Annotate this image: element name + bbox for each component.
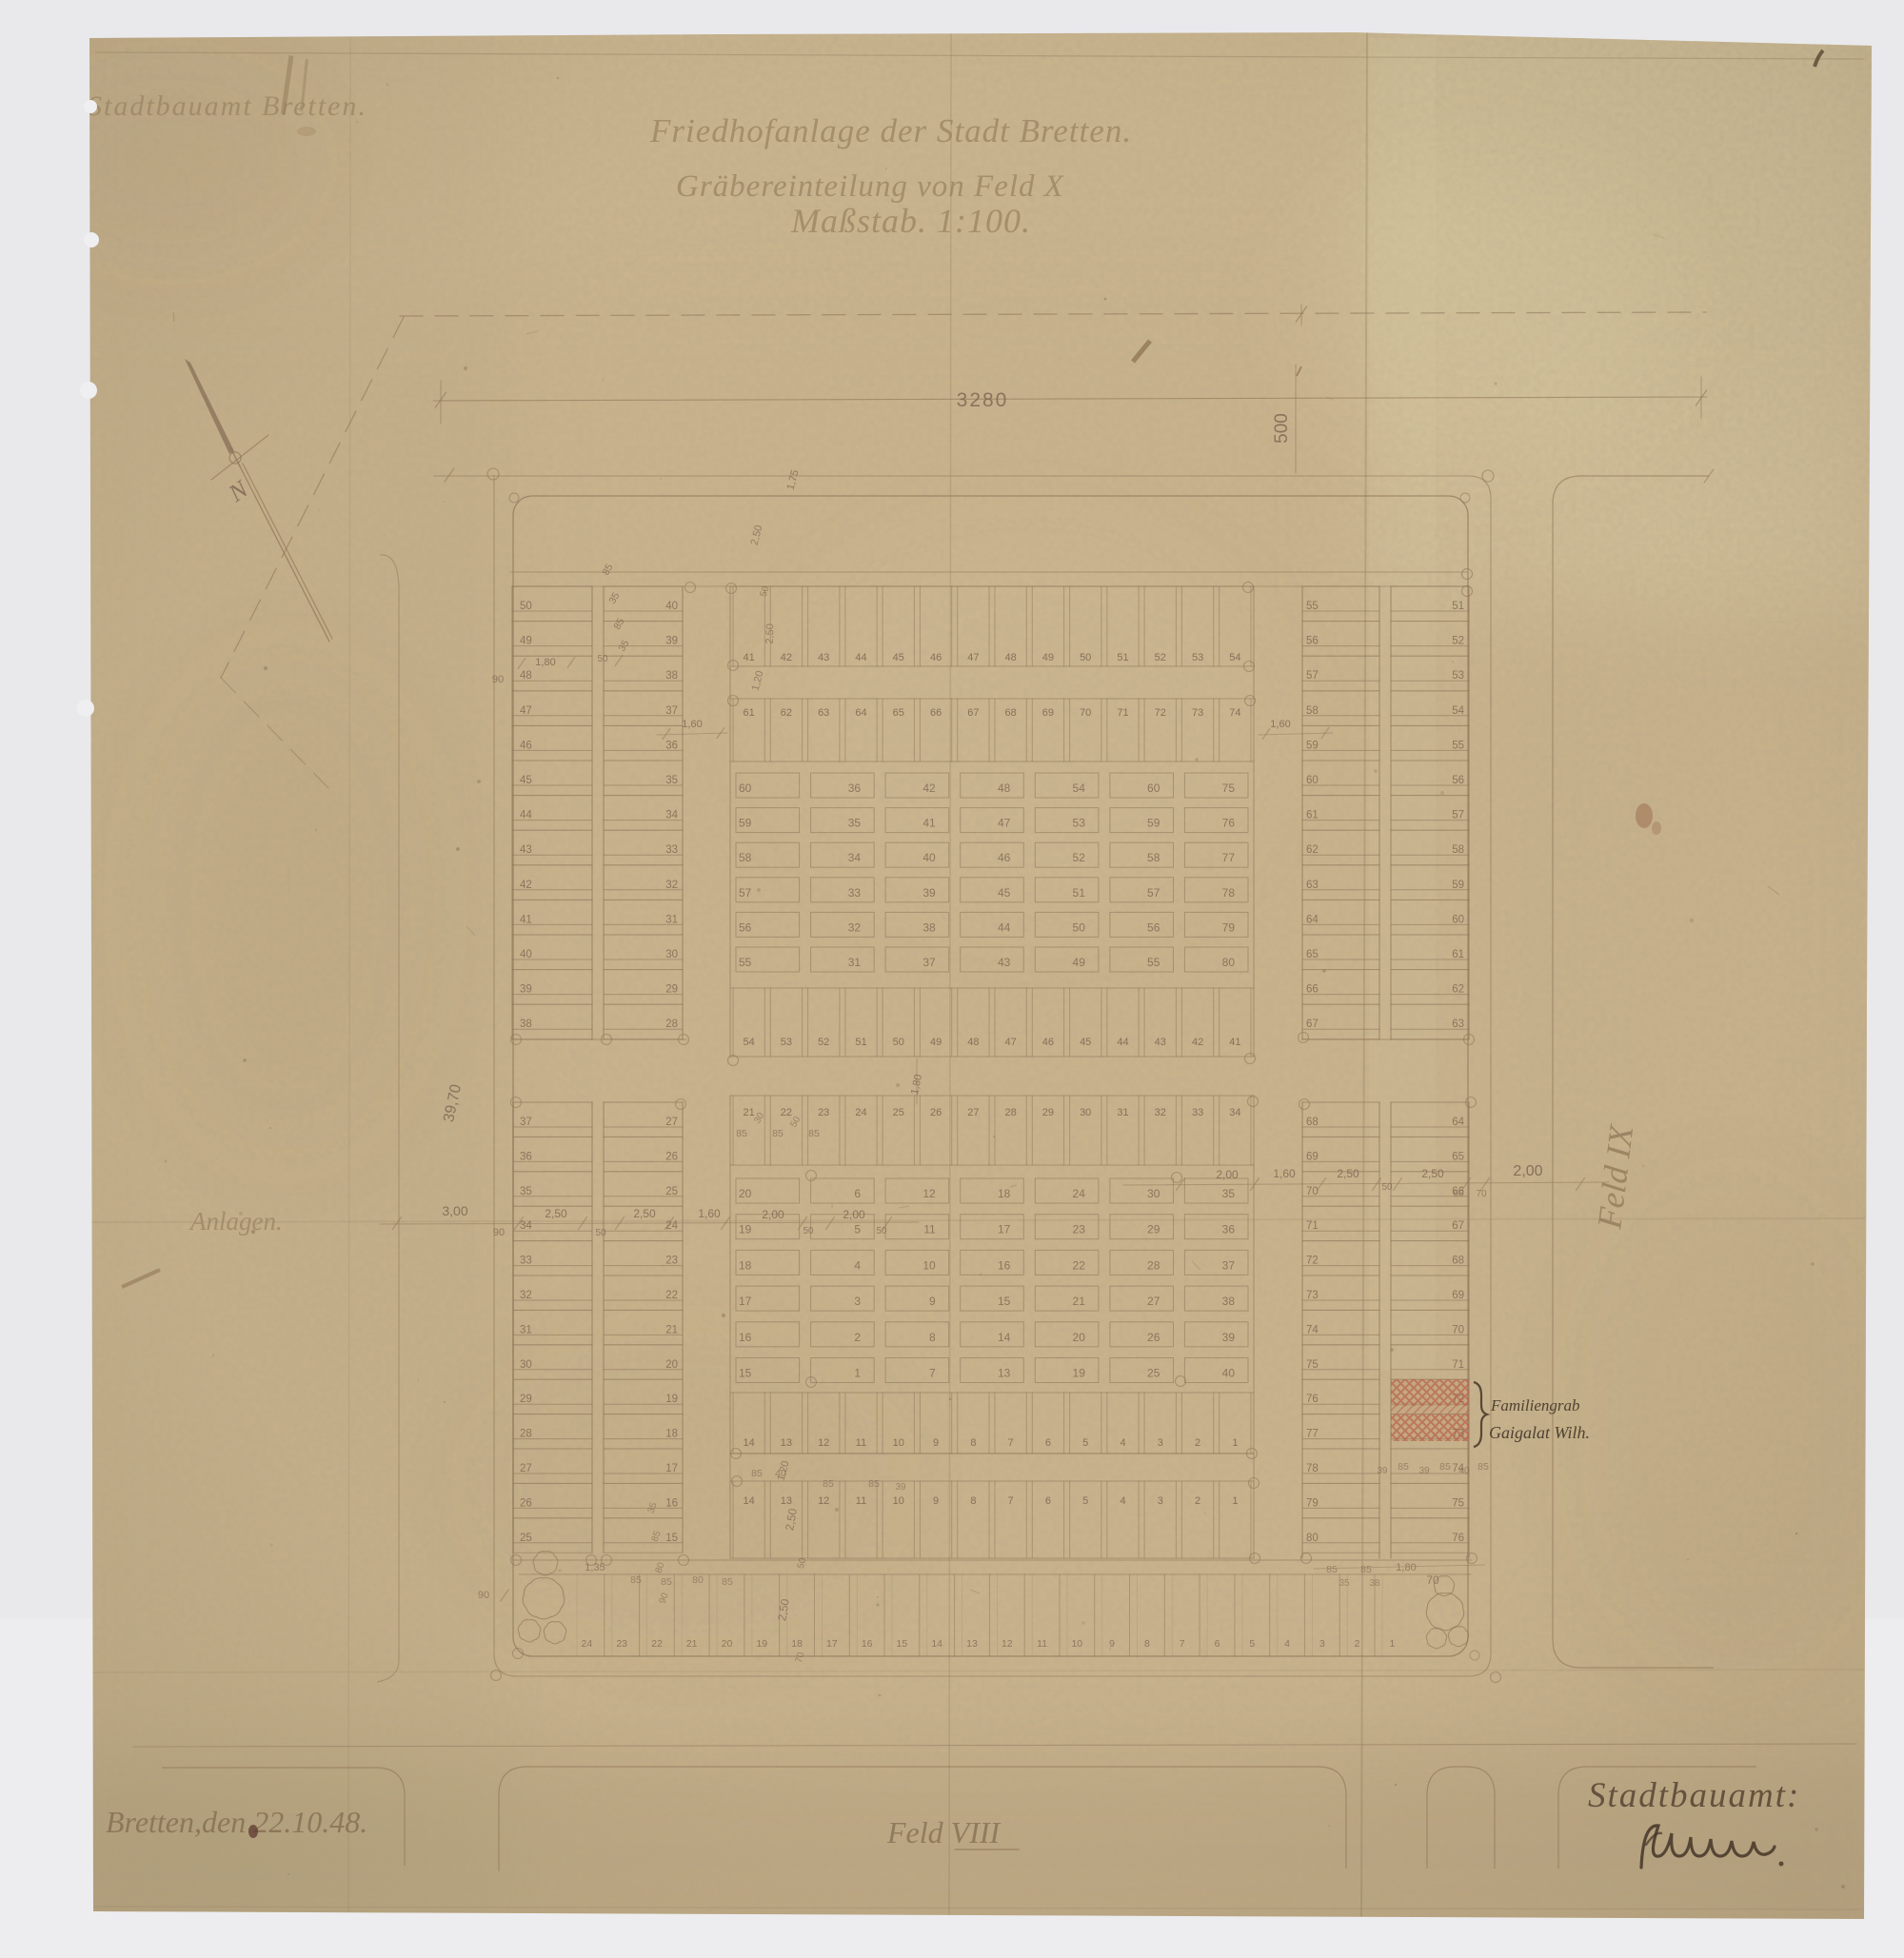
svg-text:85: 85 — [751, 1468, 763, 1479]
svg-text:25: 25 — [520, 1533, 532, 1544]
svg-text:50: 50 — [893, 1037, 904, 1048]
svg-text:20: 20 — [739, 1187, 752, 1200]
svg-text:75: 75 — [1306, 1359, 1319, 1371]
svg-text:45: 45 — [520, 775, 532, 786]
svg-text:62: 62 — [781, 707, 792, 719]
svg-text:Bretten,den 22.10.48.: Bretten,den 22.10.48. — [106, 1805, 367, 1839]
svg-text:34: 34 — [520, 1220, 532, 1232]
svg-text:8: 8 — [1144, 1638, 1150, 1650]
svg-text:27: 27 — [665, 1117, 678, 1128]
svg-text:55: 55 — [739, 956, 752, 969]
svg-text:60: 60 — [1147, 781, 1160, 795]
svg-text:2,00: 2,00 — [762, 1208, 784, 1221]
svg-text:7: 7 — [1180, 1638, 1185, 1650]
svg-text:76: 76 — [1452, 1533, 1464, 1544]
svg-text:10: 10 — [893, 1437, 904, 1449]
svg-text:48: 48 — [967, 1037, 979, 1048]
svg-text:76: 76 — [1306, 1394, 1319, 1405]
svg-text:36: 36 — [1222, 1223, 1236, 1236]
svg-text:36: 36 — [665, 740, 678, 751]
svg-text:24: 24 — [1073, 1187, 1086, 1200]
svg-text:18: 18 — [998, 1187, 1011, 1200]
svg-text:39: 39 — [895, 1482, 906, 1493]
svg-text:56: 56 — [1147, 920, 1160, 934]
svg-text:80: 80 — [1306, 1533, 1319, 1544]
svg-text:17: 17 — [665, 1463, 678, 1474]
svg-text:79: 79 — [1222, 920, 1236, 934]
svg-text:2,00: 2,00 — [1216, 1168, 1239, 1181]
svg-text:52: 52 — [1155, 652, 1166, 663]
svg-text:78: 78 — [1306, 1463, 1319, 1474]
svg-text:85: 85 — [1326, 1564, 1338, 1575]
svg-text:25: 25 — [1147, 1367, 1160, 1380]
svg-text:60: 60 — [1452, 914, 1464, 925]
svg-text:28: 28 — [520, 1429, 532, 1440]
svg-text:43: 43 — [818, 652, 829, 663]
svg-text:28: 28 — [665, 1019, 678, 1030]
svg-text:2: 2 — [1355, 1638, 1360, 1650]
svg-text:58: 58 — [1452, 844, 1464, 856]
svg-text:85: 85 — [808, 1128, 820, 1139]
svg-text:47: 47 — [998, 817, 1011, 830]
svg-text:11: 11 — [923, 1223, 936, 1236]
svg-text:2: 2 — [854, 1331, 861, 1344]
svg-text:1,80: 1,80 — [1396, 1562, 1416, 1573]
svg-text:74: 74 — [1306, 1324, 1319, 1335]
svg-text:26: 26 — [520, 1497, 532, 1509]
svg-text:10: 10 — [1071, 1638, 1082, 1650]
svg-text:49: 49 — [930, 1037, 942, 1048]
svg-text:50: 50 — [876, 1226, 887, 1236]
svg-text:53: 53 — [1192, 652, 1203, 663]
svg-text:29: 29 — [1147, 1223, 1160, 1236]
svg-text:46: 46 — [930, 652, 942, 663]
svg-text:58: 58 — [739, 851, 752, 864]
svg-text:35: 35 — [1339, 1578, 1350, 1589]
svg-text:4: 4 — [1284, 1638, 1290, 1650]
svg-text:23: 23 — [1073, 1223, 1086, 1236]
svg-text:56: 56 — [739, 920, 752, 934]
svg-text:33: 33 — [520, 1256, 532, 1267]
svg-text:9: 9 — [1109, 1638, 1115, 1650]
svg-text:47: 47 — [967, 652, 979, 663]
svg-text:79: 79 — [1306, 1497, 1319, 1509]
svg-text:Friedhofanlage der Stadt Brett: Friedhofanlage der Stadt Bretten. — [649, 112, 1132, 149]
svg-text:85: 85 — [630, 1574, 642, 1586]
svg-text:40: 40 — [520, 949, 532, 960]
svg-text:44: 44 — [520, 810, 532, 821]
svg-text:38: 38 — [922, 920, 936, 934]
svg-text:65: 65 — [893, 707, 904, 719]
svg-text:61: 61 — [1306, 810, 1319, 821]
svg-text:67: 67 — [1452, 1220, 1464, 1232]
svg-text:13: 13 — [781, 1437, 792, 1449]
svg-text:10: 10 — [922, 1258, 936, 1272]
svg-text:Anlagen.: Anlagen. — [188, 1207, 283, 1236]
svg-text:6: 6 — [1215, 1638, 1220, 1650]
svg-text:31: 31 — [848, 956, 862, 969]
svg-text:38: 38 — [520, 1019, 532, 1030]
svg-text:65: 65 — [1452, 1151, 1464, 1162]
svg-text:17: 17 — [826, 1638, 838, 1650]
svg-text:40: 40 — [775, 1468, 786, 1479]
svg-text:37: 37 — [665, 705, 678, 717]
svg-text:48: 48 — [1004, 652, 1016, 663]
svg-text:73: 73 — [1192, 707, 1203, 719]
svg-text:Stadtbauamt:: Stadtbauamt: — [1588, 1776, 1800, 1815]
svg-text:29: 29 — [1042, 1107, 1054, 1118]
svg-text:500: 500 — [1272, 413, 1292, 444]
svg-text:3280: 3280 — [957, 389, 1009, 411]
svg-text:9: 9 — [933, 1437, 939, 1449]
svg-text:2: 2 — [1195, 1495, 1200, 1507]
svg-text:35: 35 — [665, 775, 678, 786]
svg-text:41: 41 — [922, 817, 936, 830]
svg-text:76: 76 — [1222, 817, 1236, 830]
svg-text:3,00: 3,00 — [442, 1203, 467, 1218]
svg-text:74: 74 — [1229, 707, 1240, 719]
svg-text:21: 21 — [1073, 1295, 1086, 1308]
svg-text:19: 19 — [756, 1638, 767, 1650]
svg-text:23: 23 — [665, 1256, 678, 1267]
svg-text:Gräbereinteilung von Feld X: Gräbereinteilung von Feld X — [676, 169, 1065, 204]
svg-text:Stadtbauamt Bretten.: Stadtbauamt Bretten. — [88, 90, 367, 122]
svg-text:70: 70 — [1426, 1573, 1439, 1587]
svg-text:23: 23 — [616, 1638, 627, 1650]
svg-text:15: 15 — [739, 1367, 752, 1380]
svg-text:49: 49 — [1042, 652, 1054, 663]
svg-text:69: 69 — [1452, 1290, 1464, 1301]
svg-text:43: 43 — [1155, 1037, 1166, 1048]
svg-text:32: 32 — [1155, 1107, 1166, 1118]
svg-text:42: 42 — [1192, 1037, 1203, 1048]
svg-text:14: 14 — [743, 1437, 754, 1449]
svg-text:42: 42 — [781, 652, 792, 663]
svg-text:90: 90 — [493, 1227, 505, 1238]
svg-text:12: 12 — [818, 1437, 829, 1449]
svg-text:52: 52 — [1073, 851, 1086, 864]
svg-text:2,00: 2,00 — [843, 1208, 865, 1221]
svg-text:85: 85 — [661, 1576, 672, 1588]
svg-text:13: 13 — [781, 1495, 792, 1507]
svg-text:78: 78 — [1222, 886, 1236, 900]
svg-text:3: 3 — [1319, 1638, 1325, 1650]
svg-text:85: 85 — [722, 1576, 733, 1588]
svg-text:38: 38 — [1369, 1578, 1380, 1589]
svg-text:28: 28 — [1004, 1107, 1016, 1118]
svg-text:57: 57 — [739, 886, 752, 900]
svg-text:37: 37 — [520, 1117, 532, 1128]
svg-text:5: 5 — [1082, 1437, 1088, 1449]
svg-text:60: 60 — [1306, 775, 1319, 786]
svg-text:11: 11 — [856, 1437, 866, 1449]
svg-text:37: 37 — [922, 956, 936, 969]
svg-text:Maßstab. 1:100.: Maßstab. 1:100. — [790, 202, 1031, 240]
svg-text:33: 33 — [665, 844, 678, 856]
svg-text:24: 24 — [582, 1638, 593, 1650]
svg-text:47: 47 — [1004, 1037, 1016, 1048]
svg-text:44: 44 — [855, 652, 866, 663]
svg-text:16: 16 — [739, 1331, 752, 1344]
svg-text:57: 57 — [1306, 670, 1319, 682]
svg-text:39: 39 — [665, 636, 678, 647]
svg-text:43: 43 — [998, 956, 1011, 969]
svg-text:16: 16 — [998, 1258, 1011, 1272]
svg-text:20: 20 — [722, 1638, 733, 1650]
svg-text:58: 58 — [1147, 851, 1160, 864]
svg-text:7: 7 — [1008, 1495, 1014, 1507]
svg-text:80: 80 — [1222, 956, 1236, 969]
svg-text:19: 19 — [665, 1394, 678, 1405]
svg-text:47: 47 — [520, 705, 532, 717]
svg-text:14: 14 — [743, 1495, 754, 1507]
svg-text:28: 28 — [1147, 1258, 1160, 1272]
svg-text:62: 62 — [1306, 844, 1319, 856]
svg-text:3: 3 — [854, 1295, 861, 1308]
svg-text:56: 56 — [1452, 775, 1464, 786]
svg-text:31: 31 — [1117, 1107, 1128, 1118]
svg-text:85: 85 — [772, 1128, 783, 1139]
svg-text:42: 42 — [922, 781, 936, 795]
svg-text:68: 68 — [1004, 707, 1016, 719]
svg-text:34: 34 — [665, 810, 678, 821]
svg-text:27: 27 — [1147, 1295, 1160, 1308]
svg-text:22: 22 — [665, 1290, 678, 1301]
svg-text:51: 51 — [1117, 652, 1128, 663]
svg-text:52: 52 — [1452, 636, 1464, 647]
svg-text:8: 8 — [970, 1437, 976, 1449]
svg-text:23: 23 — [818, 1107, 829, 1118]
svg-text:62: 62 — [1452, 984, 1464, 996]
svg-text:90: 90 — [478, 1590, 489, 1601]
svg-text:40: 40 — [922, 851, 936, 864]
svg-text:39: 39 — [1222, 1331, 1236, 1344]
svg-text:57: 57 — [1147, 886, 1160, 900]
svg-text:56: 56 — [1306, 636, 1319, 647]
svg-text:37: 37 — [1222, 1258, 1236, 1272]
svg-text:33: 33 — [848, 886, 862, 900]
svg-text:51: 51 — [855, 1037, 866, 1048]
svg-text:38: 38 — [665, 670, 678, 682]
svg-text:3: 3 — [1158, 1437, 1163, 1449]
svg-text:Feld VIII: Feld VIII — [886, 1815, 1002, 1849]
svg-text:63: 63 — [1306, 880, 1319, 891]
svg-text:58: 58 — [1306, 705, 1319, 717]
svg-text:36: 36 — [520, 1151, 532, 1162]
svg-text:41: 41 — [1229, 1037, 1240, 1048]
svg-text:52: 52 — [818, 1037, 829, 1048]
svg-text:51: 51 — [1452, 601, 1464, 612]
svg-text:17: 17 — [739, 1295, 752, 1308]
svg-text:25: 25 — [665, 1186, 678, 1197]
svg-text:18: 18 — [739, 1258, 752, 1272]
svg-text:12: 12 — [922, 1187, 936, 1200]
svg-text:67: 67 — [1306, 1019, 1319, 1030]
svg-text:85: 85 — [736, 1128, 747, 1139]
svg-text:66: 66 — [930, 707, 942, 719]
svg-text:50: 50 — [597, 654, 608, 664]
svg-text:2,50: 2,50 — [633, 1207, 656, 1220]
svg-text:57: 57 — [1452, 810, 1464, 821]
svg-text:90: 90 — [492, 674, 504, 685]
svg-text:50: 50 — [803, 1226, 814, 1236]
svg-text:64: 64 — [1306, 914, 1319, 925]
svg-text:5: 5 — [1082, 1495, 1088, 1507]
svg-text:75: 75 — [1222, 781, 1236, 795]
svg-text:50: 50 — [1073, 920, 1086, 934]
svg-text:8: 8 — [970, 1495, 976, 1507]
svg-text:71: 71 — [1452, 1359, 1464, 1371]
svg-text:8: 8 — [929, 1331, 936, 1344]
svg-text:70: 70 — [1306, 1186, 1319, 1197]
svg-text:38: 38 — [1222, 1295, 1236, 1308]
svg-text:1: 1 — [1389, 1638, 1395, 1650]
svg-text:21: 21 — [743, 1107, 754, 1118]
svg-text:4: 4 — [1120, 1495, 1125, 1507]
svg-text:Familiengrab: Familiengrab — [1490, 1396, 1580, 1414]
svg-text:30: 30 — [1080, 1107, 1091, 1118]
svg-text:21: 21 — [665, 1324, 678, 1335]
svg-text:44: 44 — [998, 920, 1011, 934]
svg-text:5: 5 — [1249, 1638, 1255, 1650]
svg-text:1,60: 1,60 — [1273, 1167, 1296, 1180]
svg-text:16: 16 — [665, 1497, 678, 1509]
svg-text:1,60: 1,60 — [682, 719, 702, 730]
svg-text:Gaigalat Wilh.: Gaigalat Wilh. — [1489, 1423, 1590, 1442]
svg-text:63: 63 — [1452, 1019, 1464, 1030]
svg-text:15: 15 — [998, 1295, 1011, 1308]
svg-text:24: 24 — [855, 1107, 866, 1118]
svg-text:70: 70 — [1476, 1189, 1487, 1199]
svg-text:48: 48 — [998, 781, 1011, 795]
svg-text:30: 30 — [1147, 1187, 1160, 1200]
svg-text:2,00: 2,00 — [1513, 1163, 1542, 1179]
svg-text:6: 6 — [1045, 1495, 1051, 1507]
svg-text:29: 29 — [520, 1394, 532, 1405]
svg-text:45: 45 — [998, 886, 1011, 900]
svg-text:9: 9 — [933, 1495, 939, 1507]
svg-text:49: 49 — [520, 636, 532, 647]
svg-text:34: 34 — [1229, 1107, 1240, 1118]
svg-text:54: 54 — [1452, 705, 1464, 717]
svg-text:46: 46 — [998, 851, 1011, 864]
svg-text:5: 5 — [854, 1223, 861, 1236]
svg-text:26: 26 — [665, 1151, 678, 1162]
svg-text:68: 68 — [1452, 1256, 1464, 1267]
svg-text:12: 12 — [818, 1495, 829, 1507]
svg-text:48: 48 — [520, 670, 532, 682]
svg-text:40: 40 — [1458, 1466, 1470, 1476]
svg-text:46: 46 — [520, 740, 532, 751]
svg-text:13: 13 — [998, 1367, 1011, 1380]
svg-text:51: 51 — [1073, 886, 1086, 900]
svg-text:85: 85 — [1360, 1564, 1372, 1575]
svg-text:46: 46 — [1042, 1037, 1054, 1048]
svg-text:20: 20 — [665, 1359, 678, 1371]
svg-text:69: 69 — [1306, 1151, 1319, 1162]
svg-text:40: 40 — [1222, 1367, 1236, 1380]
svg-text:66: 66 — [1306, 984, 1319, 996]
svg-text:55: 55 — [1452, 740, 1464, 751]
svg-text:50: 50 — [1080, 652, 1091, 663]
svg-text:3: 3 — [1158, 1495, 1163, 1507]
svg-text:26: 26 — [930, 1107, 942, 1118]
svg-text:1: 1 — [1232, 1495, 1238, 1507]
svg-text:6: 6 — [854, 1187, 861, 1200]
svg-text:1,80: 1,80 — [535, 657, 555, 668]
svg-text:34: 34 — [848, 851, 862, 864]
svg-text:66: 66 — [1453, 1189, 1464, 1199]
svg-text:69: 69 — [1042, 707, 1054, 719]
svg-text:2,50: 2,50 — [1337, 1167, 1359, 1180]
svg-text:32: 32 — [520, 1290, 532, 1301]
svg-text:22: 22 — [651, 1638, 663, 1650]
svg-text:63: 63 — [818, 707, 829, 719]
svg-text:9: 9 — [929, 1295, 936, 1308]
svg-text:54: 54 — [743, 1037, 754, 1048]
svg-text:18: 18 — [665, 1429, 678, 1440]
svg-text:2,50: 2,50 — [1421, 1167, 1444, 1180]
svg-text:39: 39 — [922, 886, 936, 900]
svg-text:64: 64 — [855, 707, 866, 719]
svg-text:15: 15 — [897, 1638, 908, 1650]
svg-text:1,60: 1,60 — [1270, 719, 1290, 730]
svg-text:20: 20 — [1073, 1331, 1086, 1344]
svg-text:54: 54 — [1229, 652, 1240, 663]
svg-text:44: 44 — [1117, 1037, 1128, 1048]
svg-text:65: 65 — [1306, 949, 1319, 960]
svg-text:32: 32 — [848, 920, 862, 934]
svg-text:59: 59 — [739, 817, 752, 830]
svg-text:39: 39 — [1377, 1466, 1388, 1476]
svg-text:59: 59 — [1147, 817, 1160, 830]
svg-text:27: 27 — [967, 1107, 979, 1118]
svg-text:14: 14 — [998, 1331, 1011, 1344]
svg-text:16: 16 — [862, 1638, 873, 1650]
svg-text:80: 80 — [692, 1574, 704, 1586]
svg-text:1,35: 1,35 — [585, 1562, 605, 1573]
svg-text:40: 40 — [665, 601, 678, 612]
svg-text:53: 53 — [1452, 670, 1464, 682]
svg-text:59: 59 — [1452, 880, 1464, 891]
svg-text:25: 25 — [893, 1107, 904, 1118]
svg-text:12: 12 — [1002, 1638, 1013, 1650]
svg-text:1: 1 — [854, 1367, 861, 1380]
svg-text:77: 77 — [1222, 851, 1236, 864]
svg-text:70: 70 — [1080, 707, 1091, 719]
svg-text:19: 19 — [739, 1223, 752, 1236]
svg-text:15: 15 — [665, 1533, 678, 1544]
svg-text:11: 11 — [856, 1495, 866, 1507]
svg-text:41: 41 — [743, 652, 754, 663]
svg-text:50: 50 — [595, 1228, 606, 1238]
svg-text:55: 55 — [1147, 956, 1160, 969]
svg-text:59: 59 — [1306, 740, 1319, 751]
svg-text:10: 10 — [893, 1495, 904, 1507]
svg-text:2: 2 — [1195, 1437, 1200, 1449]
svg-text:6: 6 — [1045, 1437, 1051, 1449]
svg-text:33: 33 — [1192, 1107, 1203, 1118]
svg-text:67: 67 — [967, 707, 979, 719]
svg-text:17: 17 — [998, 1223, 1011, 1236]
svg-text:43: 43 — [520, 844, 532, 856]
svg-text:32: 32 — [665, 880, 678, 891]
svg-text:1: 1 — [1232, 1437, 1238, 1449]
svg-text:13: 13 — [966, 1638, 978, 1650]
svg-text:4: 4 — [1120, 1437, 1125, 1449]
svg-text:26: 26 — [1147, 1331, 1160, 1344]
svg-text:18: 18 — [791, 1638, 803, 1650]
